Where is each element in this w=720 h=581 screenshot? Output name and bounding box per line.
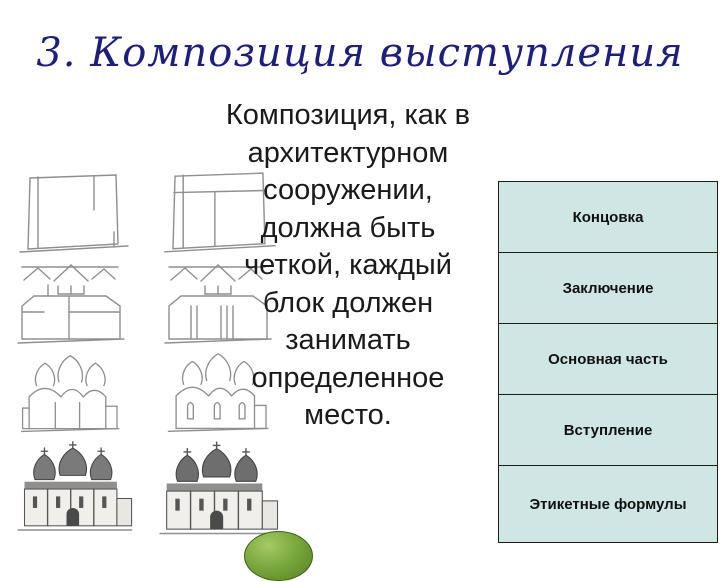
body-text-line: должна быть	[168, 210, 528, 248]
structure-block-zaklyuchenie: Заключение	[498, 252, 718, 324]
green-ellipse-decoration	[244, 531, 313, 581]
body-text-line: четкой, каждый	[168, 247, 528, 285]
structure-block-label: Концовка	[573, 209, 644, 226]
structure-block-konczovka: Концовка	[498, 181, 718, 253]
structure-block-osnovnaya-chast: Основная часть	[498, 323, 718, 395]
church-sketch-stage-4-icon	[14, 438, 140, 538]
church-sketch-stage-3-icon	[12, 352, 136, 438]
structure-block-vstuplenie: Вступление	[498, 394, 718, 466]
structure-block-etiketnye-formuly: Этикетные формулы	[498, 465, 718, 543]
structure-block-label: Основная часть	[548, 351, 668, 368]
structure-block-label: Вступление	[564, 422, 653, 439]
church-sketch-stage-1-icon	[12, 168, 138, 260]
body-text-line: архитектурном	[168, 135, 528, 173]
structure-block-label: Этикетные формулы	[529, 496, 686, 513]
slide-title: 3. Композиция выступления	[0, 30, 720, 76]
church-sketch-stage-2-icon	[10, 260, 138, 352]
structure-stack: Концовка Заключение Основная часть Вступ…	[498, 181, 718, 543]
body-text-line: сооружении,	[168, 172, 528, 210]
body-text-line: Композиция, как в	[168, 97, 528, 135]
structure-block-label: Заключение	[563, 280, 654, 297]
body-text: Композиция, как в архитектурном сооружен…	[168, 97, 528, 435]
church-sketch-stage-4-icon	[152, 440, 290, 540]
body-text-line: место.	[168, 397, 528, 435]
body-text-line: блок должен	[168, 285, 528, 323]
body-text-line: определенное	[168, 360, 528, 398]
body-text-line: занимать	[168, 322, 528, 360]
